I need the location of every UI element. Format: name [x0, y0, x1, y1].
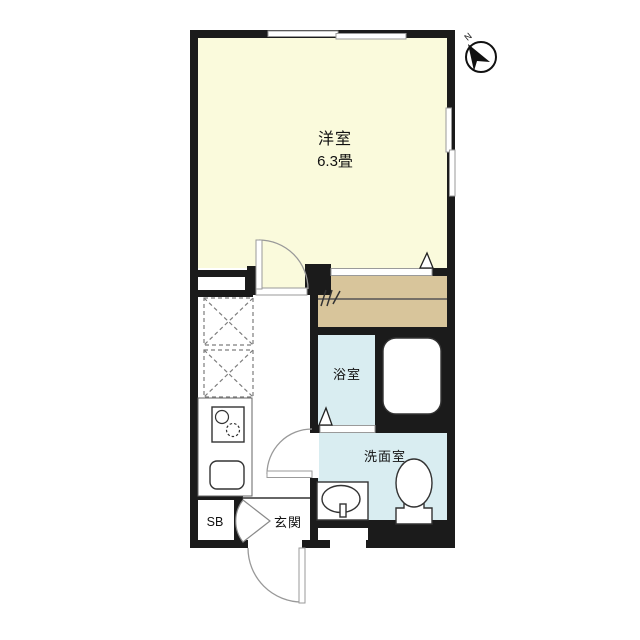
- window-right-pane-upper: [446, 108, 452, 152]
- western-room-label: 洋室: [318, 130, 352, 148]
- western-room-size-label: 6.3畳: [317, 153, 353, 170]
- window-right-pane-lower: [450, 150, 456, 196]
- wall-left: [190, 30, 198, 548]
- floor-plan-page: N 洋室 6.3畳 浴室 洗面室 玄関 SB: [0, 0, 640, 640]
- wall-niche-top: [196, 270, 252, 277]
- bathroom-door-panel: [320, 426, 375, 433]
- western-room-door-leaf: [256, 240, 262, 289]
- washbasin-faucet: [340, 504, 346, 517]
- floor-plan-svg: N 洋室 6.3畳 浴室 洗面室 玄関 SB: [0, 0, 640, 640]
- service-niche-opening: [330, 540, 366, 548]
- wall-basin-bottom: [310, 520, 376, 528]
- kitchen-sink: [210, 461, 244, 489]
- entrance-door-leaf: [299, 548, 305, 603]
- wall-niche-bottom: [196, 290, 252, 297]
- bathroom-label: 浴室: [333, 367, 361, 382]
- toilet-bowl: [396, 459, 432, 507]
- western-room-door-threshold: [256, 288, 307, 295]
- service-niche: [318, 528, 368, 540]
- closet-floor: [318, 274, 447, 328]
- washroom-door-leaf: [267, 471, 312, 478]
- window-top-pane-left: [268, 31, 338, 37]
- wall-niche2-right: [368, 520, 376, 548]
- entrance-label: 玄関: [274, 515, 302, 530]
- stove-burner: [216, 411, 229, 424]
- bathtub: [383, 338, 441, 414]
- wall-closet-bottom: [310, 327, 455, 335]
- washroom-label: 洗面室: [364, 449, 406, 464]
- window-top-pane-right: [336, 34, 406, 40]
- shoebox-label: SB: [207, 515, 224, 529]
- entrance-opening: [248, 540, 302, 548]
- closet-door-panel: [331, 269, 432, 276]
- stove-burner-small: [227, 424, 240, 437]
